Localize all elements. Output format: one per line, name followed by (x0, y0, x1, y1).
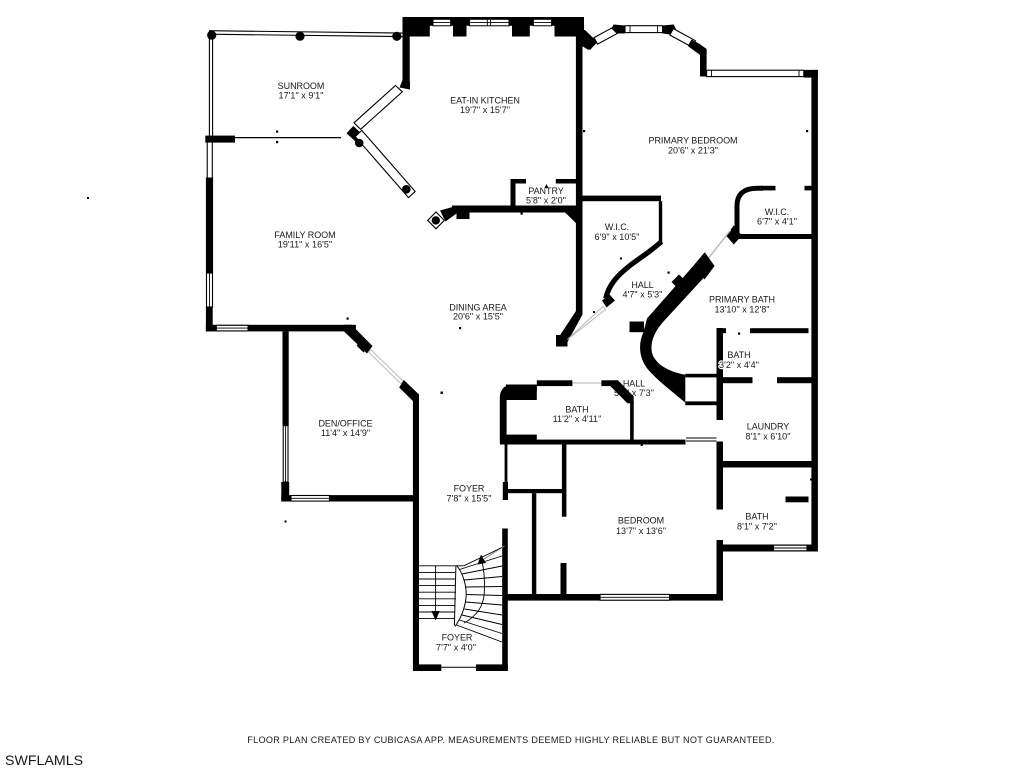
svg-text:W.I.C.: W.I.C. (605, 222, 629, 232)
svg-text:8'1" x 7'2": 8'1" x 7'2" (737, 522, 777, 532)
svg-text:6'7" x 4'1": 6'7" x 4'1" (757, 217, 797, 227)
svg-text:LAUNDRY: LAUNDRY (747, 422, 790, 432)
svg-text:W.I.C.: W.I.C. (765, 207, 789, 217)
svg-text:FLOOR PLAN CREATED BY CUBICASA: FLOOR PLAN CREATED BY CUBICASA APP. MEAS… (247, 735, 774, 745)
svg-text:BATH: BATH (565, 405, 588, 415)
svg-text:19'7" x 15'7": 19'7" x 15'7" (460, 105, 510, 115)
svg-text:7'8" x 15'5": 7'8" x 15'5" (447, 494, 492, 504)
svg-text:13'7" x 13'6": 13'7" x 13'6" (616, 526, 666, 536)
svg-text:FOYER: FOYER (442, 633, 473, 643)
svg-text:HALL: HALL (623, 379, 645, 389)
svg-text:HALL: HALL (631, 280, 653, 290)
svg-text:4'7" x 5'3": 4'7" x 5'3" (623, 290, 663, 300)
svg-text:3'2" x 4'4": 3'2" x 4'4" (719, 360, 759, 370)
svg-text:6'9" x 10'5": 6'9" x 10'5" (595, 232, 640, 242)
svg-text:17'1" x 9'1": 17'1" x 9'1" (279, 91, 324, 101)
svg-text:5'8" x 2'0": 5'8" x 2'0" (526, 196, 566, 206)
svg-text:20'6" x 21'3": 20'6" x 21'3" (668, 146, 718, 156)
svg-text:BATH: BATH (745, 512, 768, 522)
svg-text:EAT-IN KITCHEN: EAT-IN KITCHEN (450, 96, 520, 106)
svg-text:FOYER: FOYER (454, 484, 485, 494)
svg-text:13'10" x 12'8": 13'10" x 12'8" (714, 305, 769, 315)
svg-text:PRIMARY BEDROOM: PRIMARY BEDROOM (649, 136, 738, 146)
svg-text:SWFLAMLS: SWFLAMLS (5, 753, 83, 768)
svg-text:19'11" x 16'5": 19'11" x 16'5" (278, 240, 332, 250)
svg-text:20'6" x 15'5": 20'6" x 15'5" (453, 311, 503, 321)
svg-text:BATH: BATH (727, 350, 750, 360)
svg-text:FAMILY ROOM: FAMILY ROOM (274, 230, 335, 240)
svg-text:11'2" x 4'11": 11'2" x 4'11" (553, 414, 602, 424)
svg-text:SUNROOM: SUNROOM (278, 81, 325, 91)
svg-text:7'7" x 4'0": 7'7" x 4'0" (436, 643, 476, 653)
svg-text:PRIMARY BATH: PRIMARY BATH (709, 295, 775, 305)
svg-text:BEDROOM: BEDROOM (618, 516, 664, 526)
svg-text:11'4" x 14'9": 11'4" x 14'9" (321, 428, 370, 438)
svg-text:8'1" x 6'10": 8'1" x 6'10" (746, 432, 791, 442)
svg-text:DEN/OFFICE: DEN/OFFICE (318, 419, 372, 429)
